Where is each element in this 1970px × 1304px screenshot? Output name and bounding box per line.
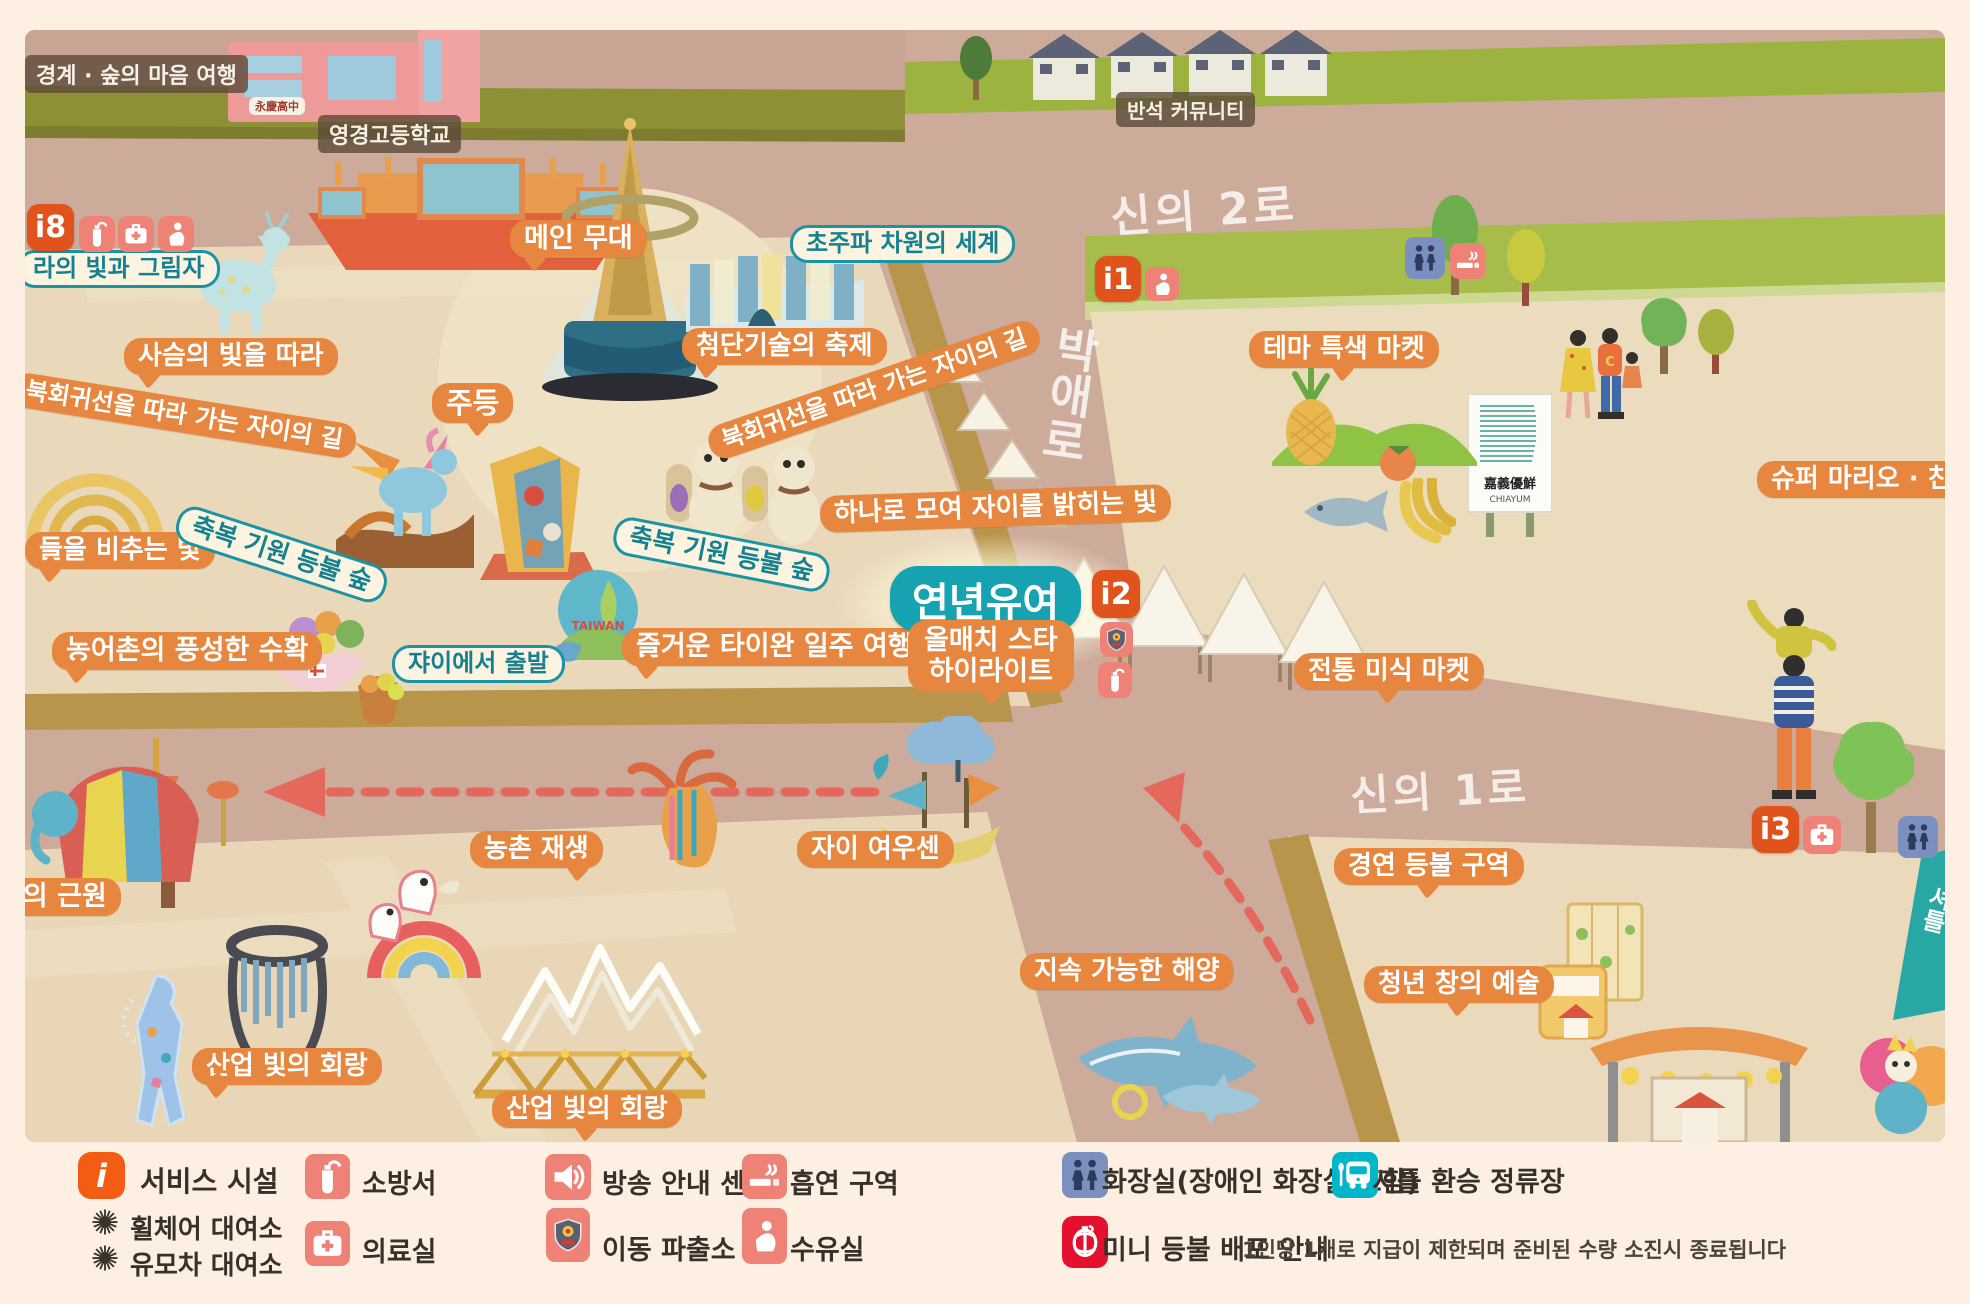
place-label-school-sign: 永慶高中 (249, 97, 305, 115)
place-label-border-trip: 경계 · 숲의 마음 여행 (25, 55, 248, 93)
map-label-main-lantern: 주등 (432, 383, 513, 423)
map-label-theme-market: 테마 특색 마켓 (1249, 331, 1439, 368)
allmatch-line2: 하이라이트 (924, 656, 1058, 687)
road-label-shinui-1: 신의 1로 (1349, 753, 1532, 823)
map-label-allmatch-star: 올매치 스타 하이라이트 (908, 620, 1074, 692)
map-label-main-stage: 메인 무대 (510, 220, 647, 258)
map-label-rural-regen: 농촌 재생 (470, 831, 603, 868)
road-label-shinui-2: 신의 2로 (1108, 169, 1299, 246)
map-label-ultrasonic-world: 초주파 차원의 세계 (790, 225, 1015, 263)
smoking-area-icon (1450, 243, 1486, 279)
info-badge-i8: i8 (27, 204, 74, 251)
legend-service-label: 서비스 시설 (140, 1160, 279, 1200)
map-label-super-mario: 슈퍼 마리오 · 친 (1757, 461, 1945, 498)
legend-stroller-label: 유모차 대여소 (130, 1245, 283, 1282)
legend-fire-station-label: 소방서 (362, 1162, 437, 1201)
smoking-area-icon (742, 1154, 787, 1199)
nursing-room-icon (158, 216, 194, 252)
info-badge-i3: i3 (1752, 806, 1799, 853)
police-box-icon (546, 1208, 590, 1262)
place-label-school: 영경고등학교 (318, 115, 461, 153)
place-label-community: 반석 커뮤니티 (1116, 92, 1255, 127)
medical-kit-icon (118, 216, 154, 252)
legend-mini-lantern-note: 1인당 1개로 지급이 제한되며 준비된 수량 소진시 종료됩니다 (1242, 1234, 1786, 1264)
nursing-room-icon (1145, 267, 1179, 301)
medical-kit-icon (1803, 816, 1841, 854)
legend-smoking-label: 흡연 구역 (790, 1162, 899, 1201)
fire-extinguisher-icon (305, 1154, 350, 1199)
info-badge-i2: i2 (1092, 570, 1140, 618)
info-badge-i1: i1 (1095, 256, 1141, 302)
service-info-icon: i (78, 1152, 125, 1199)
map-label-tech-festival: 첨단기술의 축제 (682, 328, 887, 365)
map-label-deer-light: 사슴의 빛을 따라 (124, 338, 338, 375)
toilet-icon (1405, 237, 1445, 279)
stroller-rental-icon (90, 1243, 120, 1273)
map-label-industry-corridor-2: 산업 빛의 회랑 (492, 1091, 682, 1128)
legend-shuttle-label: 셔틀 환승 정류장 (1372, 1160, 1565, 1199)
medical-kit-icon (305, 1221, 350, 1266)
toilet-icon (1898, 816, 1938, 858)
map-label-aurora-light-shadow: 라의 빛과 그림자 (25, 250, 220, 288)
fire-extinguisher-icon (1098, 662, 1132, 698)
nursing-room-icon (742, 1208, 787, 1264)
legend-police-box-label: 이동 파출소 (602, 1228, 736, 1267)
map-label-depart-chiayi: 쟈이에서 출발 (392, 645, 565, 683)
map-label-traditional-market: 전통 미식 마켓 (1294, 653, 1484, 690)
map-label-industry-corridor-1: 산업 빛의 회랑 (192, 1048, 382, 1085)
map-label-harvest: 농어촌의 풍성한 수확 (52, 632, 322, 670)
legend-nursing-label: 수유실 (790, 1228, 865, 1267)
broadcast-speaker-icon (545, 1154, 591, 1200)
police-box-icon (1100, 622, 1133, 657)
map-label-taiwan-tour: 즐거운 타이완 일주 여행 (622, 628, 927, 666)
map-label-chiayi-fuchsen: 자이 여우센 (797, 831, 954, 868)
legend-wheelchair-label: 휠체어 대여소 (130, 1209, 283, 1246)
legend-medical-room-label: 의료실 (362, 1230, 437, 1269)
wheelchair-rental-icon (90, 1207, 120, 1237)
map-label-youth-art: 청년 창의 예술 (1364, 966, 1554, 1003)
fire-extinguisher-icon (79, 216, 115, 252)
allmatch-line1: 올매치 스타 (924, 625, 1058, 656)
map-label-competition-lanterns: 경연 등불 구역 (1334, 848, 1524, 885)
map-label-sustainable-ocean: 지속 가능한 해양 (1020, 953, 1234, 990)
festival-map-page: { "colors": { "page_bg": "#fdf0e2", "ora… (0, 0, 1970, 1304)
map-label-life-origin: 명의 근원 (25, 878, 121, 916)
festival-map: TAIWAN (25, 30, 1945, 1142)
